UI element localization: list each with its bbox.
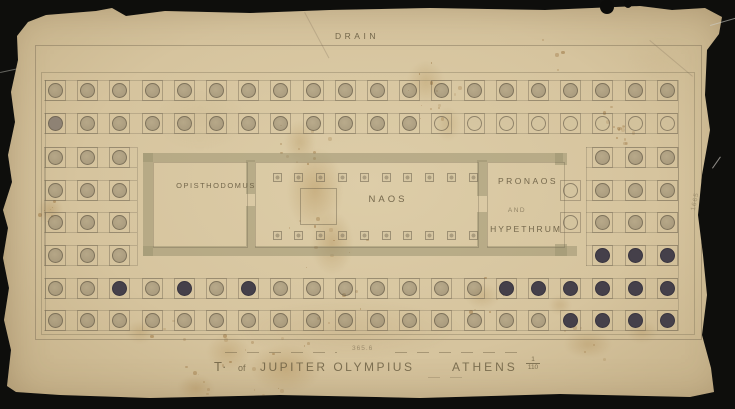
naos-pier — [447, 173, 456, 182]
drawing-sheet: DRAIN OPISTHODOMUS NAOS PRONAOS AND — [0, 0, 735, 409]
naos-pier — [469, 173, 478, 182]
scale-denominator: 110 — [524, 364, 542, 372]
title-t: T· — [214, 359, 226, 374]
photo-background: DRAIN OPISTHODOMUS NAOS PRONAOS AND — [0, 0, 735, 409]
naos-pier — [447, 231, 456, 240]
naos-pier — [294, 173, 303, 182]
naos-pier — [316, 173, 325, 182]
scale-fraction: 1 110 — [524, 356, 542, 372]
naos-pier — [425, 173, 434, 182]
title-underline-dash — [428, 377, 462, 378]
naos-pier — [273, 173, 282, 182]
speckle — [209, 397, 213, 401]
naos-pier — [338, 231, 347, 240]
hypethrum-label: HYPETHRUM — [490, 224, 562, 234]
naos-label: NAOS — [369, 194, 408, 205]
pronaos-and-label: AND — [508, 207, 526, 214]
torn-notch — [600, 0, 614, 14]
title-dash-left — [225, 352, 337, 353]
title-main: JUPITER OLYMPIUS — [260, 360, 414, 374]
naos-pier — [273, 231, 282, 240]
naos-pier — [403, 231, 412, 240]
naos-pier — [294, 231, 303, 240]
opisthodomus-label: OPISTHODOMUS — [176, 181, 256, 190]
title-of: of — [238, 363, 246, 373]
naos-pier — [360, 173, 369, 182]
pronaos-label: PRONAOS — [498, 176, 558, 186]
naos-pier — [382, 173, 391, 182]
naos-pier — [425, 231, 434, 240]
title-dash-right — [395, 352, 521, 353]
naos-pier — [360, 231, 369, 240]
scale-numerator: 1 — [524, 356, 542, 363]
scratch-mark — [712, 157, 721, 169]
naos-pier — [469, 231, 478, 240]
title-city: ATHENS — [452, 360, 518, 374]
naos-pier — [338, 173, 347, 182]
naos-pier — [403, 173, 412, 182]
figure-note: 365.6 — [352, 345, 373, 352]
naos-pier — [316, 231, 325, 240]
naos-pier — [382, 231, 391, 240]
